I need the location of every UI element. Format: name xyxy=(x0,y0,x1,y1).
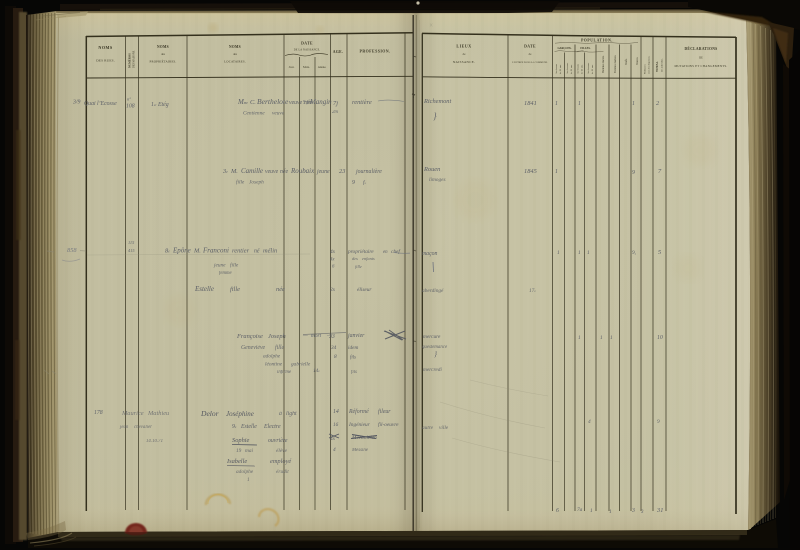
svg-text:Geneviève: Geneviève xyxy=(241,345,266,351)
svg-text:9 fév: 9 fév xyxy=(303,101,313,106)
svg-text:Berthelote: Berthelote xyxy=(257,97,289,106)
svg-text:Année.: Année. xyxy=(318,65,327,69)
svg-text:Joséphine: Joséphine xyxy=(226,410,254,418)
svg-text:115: 115 xyxy=(128,240,135,245)
svg-text:31: 31 xyxy=(656,507,663,514)
svg-text:veuve: veuve xyxy=(289,100,303,106)
svg-text:1: 1 xyxy=(247,477,250,483)
svg-text:fils: fils xyxy=(351,370,357,375)
svg-text:DÉCLARATIONS: DÉCLARATIONS xyxy=(684,46,717,51)
svg-text:1: 1 xyxy=(555,101,558,107)
svg-text:Franconi: Franconi xyxy=(202,247,229,255)
svg-text:9: 9 xyxy=(352,180,355,186)
svg-text:des: des xyxy=(352,256,358,261)
svg-text:14.10.71: 14.10.71 xyxy=(146,439,163,444)
svg-text:limoges: limoges xyxy=(429,177,446,183)
svg-text:1: 1 xyxy=(578,101,581,107)
svg-text:5: 5 xyxy=(658,249,661,256)
svg-text:gabrielle: gabrielle xyxy=(291,362,311,368)
svg-text:adolphe: adolphe xyxy=(236,469,254,475)
svg-text:1: 1 xyxy=(609,509,612,515)
svg-text:autre: autre xyxy=(422,425,434,431)
svg-text:DATE: DATE xyxy=(301,41,313,45)
svg-text:femme: femme xyxy=(219,271,233,276)
svg-text:enfants: enfants xyxy=(362,256,375,261)
svg-text:4x: 4x xyxy=(330,249,336,255)
svg-text:Sophie: Sophie xyxy=(232,437,250,444)
svg-text:16: 16 xyxy=(333,422,339,428)
svg-text:Electre: Electre xyxy=(263,424,281,430)
svg-text:Françoise: Françoise xyxy=(236,333,263,340)
svg-text:1: 1 xyxy=(578,250,581,256)
svg-text:DE LA NAISSANCE.: DE LA NAISSANCE. xyxy=(294,48,321,51)
svg-text:Veuves.: Veuves. xyxy=(636,57,639,65)
svg-text:Mangin: Mangin xyxy=(309,98,332,106)
svg-text:4: 4 xyxy=(588,419,591,425)
svg-text:chevalier: chevalier xyxy=(134,425,152,430)
svg-text:8: 8 xyxy=(334,354,337,360)
svg-text:adolphe: adolphe xyxy=(263,354,281,360)
svg-text:3: 3 xyxy=(631,508,635,514)
svg-text:à: à xyxy=(279,411,282,417)
svg-text:Femmes mariées.: Femmes mariées. xyxy=(614,54,617,73)
svg-text:9: 9 xyxy=(632,170,635,176)
svg-text:fils: fils xyxy=(350,356,356,361)
svg-text:Delor: Delor xyxy=(200,409,219,418)
svg-text:2x: 2x xyxy=(330,287,336,293)
svg-text:C.: C. xyxy=(250,99,256,106)
svg-text:aberdingé: aberdingé xyxy=(422,288,444,294)
svg-text:Réformé: Réformé xyxy=(348,408,369,415)
svg-text:DES RUES.: DES RUES. xyxy=(96,59,115,63)
svg-text:34: 34 xyxy=(331,345,337,351)
svg-text:MUTATIONS ET CHANGEMENTS.: MUTATIONS ET CHANGEMENTS. xyxy=(674,64,727,68)
svg-text:NAISSANCE.: NAISSANCE. xyxy=(453,60,475,64)
svg-text:Maurice: Maurice xyxy=(121,410,144,417)
svg-text:14: 14 xyxy=(333,408,339,415)
svg-text:Joseph: Joseph xyxy=(268,333,286,340)
svg-text:Epône: Epône xyxy=(172,247,191,255)
svg-text:mai: mai xyxy=(245,448,254,454)
svg-text:33: 33 xyxy=(328,334,335,340)
svg-text:108: 108 xyxy=(126,104,135,110)
svg-text:janvier: janvier xyxy=(347,333,365,339)
svg-text:Rouen: Rouen xyxy=(423,166,440,173)
svg-text:ouvrière: ouvrière xyxy=(268,438,288,444)
svg-text:journalière: journalière xyxy=(355,169,382,175)
svg-text:Roubaix: Roubaix xyxy=(290,167,315,175)
svg-text:3/9: 3/9 xyxy=(72,100,81,106)
svg-text:éliseur: éliseur xyxy=(357,287,372,293)
svg-text:FILLES.: FILLES. xyxy=(580,47,591,50)
svg-text:de 21 ans.: de 21 ans. xyxy=(570,64,573,74)
svg-text:NOMS: NOMS xyxy=(229,45,241,49)
svg-text:1: 1 xyxy=(587,250,590,256)
svg-text:chef: chef xyxy=(391,248,401,255)
svg-text:1: 1 xyxy=(555,169,558,175)
svg-text:1: 1 xyxy=(578,335,581,341)
svg-text:TOTAL: TOTAL xyxy=(655,61,659,72)
svg-text:23: 23 xyxy=(339,168,345,175)
svg-text:1er Etég: 1er Etég xyxy=(151,102,169,108)
svg-text:Isabelle: Isabelle xyxy=(226,458,247,465)
svg-text:178: 178 xyxy=(94,410,103,416)
svg-text:DE: DE xyxy=(699,57,703,60)
svg-text:jean: jean xyxy=(119,425,129,430)
svg-text:fille: fille xyxy=(230,286,240,293)
svg-text:fille: fille xyxy=(230,262,239,269)
svg-text:PROFESSION.: PROFESSION. xyxy=(360,49,391,54)
svg-text:1: 1 xyxy=(632,101,635,107)
svg-text:des individus.: des individus. xyxy=(661,58,664,72)
svg-text:mélin: mélin xyxy=(263,248,277,255)
svg-text:Au-dessus: Au-dessus xyxy=(577,64,580,74)
svg-text:maçon: maçon xyxy=(422,251,438,257)
svg-text:né: né xyxy=(254,249,260,255)
svg-text:Estelle: Estelle xyxy=(194,285,214,293)
svg-text:rentier: rentier xyxy=(232,248,250,255)
svg-text:light: light xyxy=(286,411,297,417)
svg-text:PROPRIÉTAIRES.: PROPRIÉTAIRES. xyxy=(150,59,177,64)
svg-text:Richemont: Richemont xyxy=(423,98,451,105)
svg-text:415: 415 xyxy=(128,248,135,253)
svg-text:NOMS: NOMS xyxy=(157,45,169,49)
svg-text:fille: fille xyxy=(236,179,245,186)
svg-text:}: } xyxy=(434,349,437,358)
svg-text:de 21 ans.: de 21 ans. xyxy=(581,64,584,74)
svg-text:L'ENTRÉE DANS LA COMMUNE.: L'ENTRÉE DANS LA COMMUNE. xyxy=(512,61,548,64)
svg-text:employé: employé xyxy=(270,458,292,465)
svg-text:née: née xyxy=(276,286,285,293)
svg-text:Camille: Camille xyxy=(241,167,263,175)
svg-text:NOMS: NOMS xyxy=(98,45,112,50)
svg-text:10: 10 xyxy=(657,335,663,341)
svg-text:l’Ecosse: l’Ecosse xyxy=(97,101,117,107)
svg-text:DES MAISONS.: DES MAISONS. xyxy=(133,50,136,68)
svg-text:NUMÉROS: NUMÉROS xyxy=(128,53,132,68)
svg-text:fille: fille xyxy=(355,264,362,269)
svg-text:propriétaire: propriétaire xyxy=(347,249,374,255)
svg-text:veuve: veuve xyxy=(272,111,285,117)
svg-text:Au-dessus: Au-dessus xyxy=(555,64,558,74)
svg-text:n°: n° xyxy=(127,97,131,102)
svg-text:Joseph: Joseph xyxy=(249,180,264,186)
svg-text:1: 1 xyxy=(557,250,560,256)
svg-text:Mois.: Mois. xyxy=(303,65,310,69)
svg-text:mercredi: mercredi xyxy=(423,367,442,373)
svg-text:Ingénieur: Ingénieur xyxy=(348,422,371,428)
svg-text:LOCATAIRES.: LOCATAIRES. xyxy=(224,60,246,64)
svg-text:fil-oeuvre: fil-oeuvre xyxy=(378,421,399,428)
svg-text:élève: élève xyxy=(276,448,288,454)
svg-text:GARÇONS.: GARÇONS. xyxy=(557,47,571,50)
svg-text:1: 1 xyxy=(590,508,593,514)
svg-text:Veufs.: Veufs. xyxy=(625,58,628,65)
svg-text:jeune: jeune xyxy=(316,169,330,175)
svg-text:Au-dessous: Au-dessous xyxy=(587,63,590,74)
svg-text:1841: 1841 xyxy=(524,100,537,107)
svg-text:M.: M. xyxy=(193,248,201,255)
svg-text:Messine: Messine xyxy=(351,448,369,453)
svg-text:6: 6 xyxy=(556,508,559,514)
svg-text:Hommes mariés.: Hommes mariés. xyxy=(602,55,605,73)
svg-text:}: } xyxy=(433,112,437,122)
svg-text:mercure: mercure xyxy=(423,334,441,340)
svg-text:sous les drapeaux.: sous les drapeaux. xyxy=(648,55,651,74)
svg-text:DATE: DATE xyxy=(524,45,536,49)
svg-text:LIEUX: LIEUX xyxy=(456,43,471,48)
svg-text:1: 1 xyxy=(600,335,603,341)
svg-text:de 21 ans.: de 21 ans. xyxy=(559,64,562,74)
svg-text:érudit: érudit xyxy=(276,469,289,475)
svg-text:Au-dessous: Au-dessous xyxy=(566,63,569,74)
svg-text:7a: 7a xyxy=(577,507,583,513)
svg-text:jeune: jeune xyxy=(213,263,226,269)
svg-text:infirme: infirme xyxy=(277,370,292,375)
svg-text:née: née xyxy=(280,169,288,175)
svg-text:—: — xyxy=(302,333,308,339)
svg-text:fileur: fileur xyxy=(378,408,391,415)
svg-text:8e: 8e xyxy=(165,248,170,255)
svg-text:Jour.: Jour. xyxy=(289,65,295,69)
svg-text:idem: idem xyxy=(348,345,359,351)
svg-text:9,: 9, xyxy=(632,250,636,256)
svg-text:Mathieu: Mathieu xyxy=(147,410,169,417)
svg-text:2m: 2m xyxy=(332,110,338,115)
svg-text:7j: 7j xyxy=(333,100,338,107)
svg-text:ville: ville xyxy=(439,425,449,431)
svg-text:858: 858 xyxy=(67,247,77,254)
svg-text:fille: fille xyxy=(275,344,284,351)
svg-text:en: en xyxy=(383,250,388,255)
svg-text:4: 4 xyxy=(333,447,336,453)
svg-text:19: 19 xyxy=(236,448,242,454)
svg-text:veuve: veuve xyxy=(265,169,279,175)
svg-text:Quai: Quai xyxy=(84,101,96,107)
svg-text:Estelle: Estelle xyxy=(240,424,257,430)
svg-text:Centienne: Centienne xyxy=(243,111,265,117)
svg-text:AGE.: AGE. xyxy=(333,50,343,54)
svg-text:léontine: léontine xyxy=(265,362,283,368)
svg-text:POPULATION.: POPULATION. xyxy=(581,39,613,43)
svg-text:M.: M. xyxy=(230,168,238,175)
svg-text:3e: 3e xyxy=(222,168,228,175)
svg-text:9: 9 xyxy=(657,419,660,425)
svg-text:1845: 1845 xyxy=(524,168,537,175)
svg-text:Militaires: Militaires xyxy=(644,64,647,74)
svg-text:1: 1 xyxy=(610,335,613,341)
svg-text:de 21 ans.: de 21 ans. xyxy=(591,64,594,74)
svg-text:rentière: rentière xyxy=(352,99,372,106)
